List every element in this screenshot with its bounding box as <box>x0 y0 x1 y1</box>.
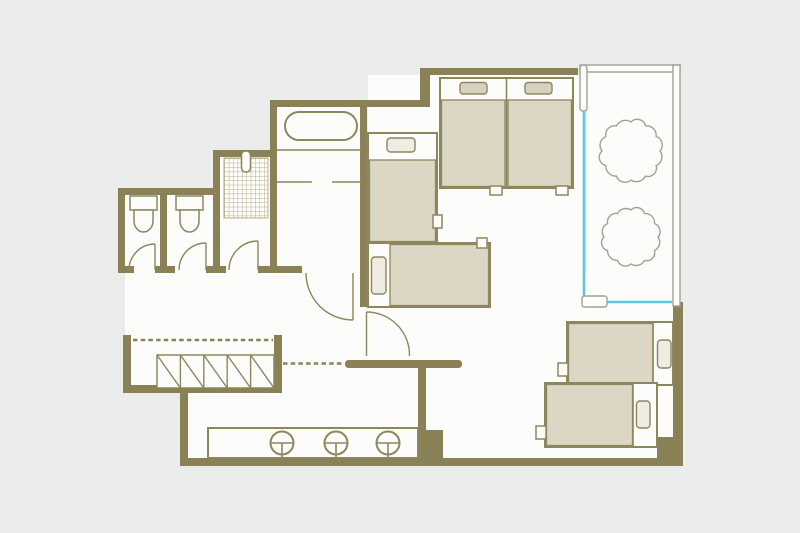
bed-pillow <box>372 257 387 294</box>
tree-lower-icon <box>602 208 660 266</box>
wall-bedroom-left <box>360 107 367 307</box>
wall-right-block <box>657 437 675 466</box>
toilet-bowl <box>180 210 199 232</box>
wall-top-bathroom <box>270 100 430 107</box>
bed-foot-right <box>556 186 568 195</box>
twin-beds <box>440 78 573 195</box>
wall-stairs-right <box>274 335 282 393</box>
bathtub <box>285 112 357 140</box>
twin-bed-left-blanket <box>442 100 506 187</box>
wall-bottom-seg2 <box>155 266 175 273</box>
floor-balcony <box>587 72 673 303</box>
wall-bathroom-left <box>270 100 277 273</box>
balcony-wall-cap <box>580 65 587 111</box>
single-bed-horizontal <box>368 238 490 307</box>
kitchen-counter <box>208 428 418 459</box>
floor-plan-diagram <box>0 0 800 533</box>
single-bed-vertical <box>368 133 442 243</box>
wall-bottom-seg4 <box>258 266 302 273</box>
bed-foot <box>536 426 546 439</box>
wall-bottom-seg1 <box>118 266 134 273</box>
wall-bottom-seg3 <box>206 266 226 273</box>
bed-pillow <box>387 138 415 152</box>
bed-blanket <box>547 385 633 446</box>
bed-blanket <box>569 324 654 384</box>
single-bed-lower <box>536 383 657 447</box>
balcony-rail-top <box>580 65 680 72</box>
floor-plan-page <box>0 0 800 533</box>
bed-foot <box>477 238 487 248</box>
toilet-tank <box>176 196 203 210</box>
door-handle <box>582 296 607 307</box>
bed-pillow <box>658 340 672 368</box>
wall-mid-vertical <box>418 368 426 460</box>
wall-step-block <box>426 430 443 460</box>
wall-outer-left-bottom <box>180 393 188 466</box>
wall-shower-left <box>213 150 220 273</box>
bed-pillow <box>637 401 651 428</box>
wall-toilets-left <box>118 188 125 273</box>
tree-upper-icon <box>599 119 662 182</box>
twin-bed-right-blanket <box>508 100 572 187</box>
bed-blanket <box>390 245 489 306</box>
bed-foot <box>558 363 568 376</box>
wall-mid-horizontal <box>345 360 462 368</box>
wall-toilet-divider <box>160 195 167 273</box>
shower-head-icon <box>242 151 251 172</box>
bed-foot <box>433 215 442 228</box>
toilet-tank <box>130 196 157 210</box>
wall-toilets-top <box>118 188 213 195</box>
wall-outer-bottom <box>180 458 683 466</box>
bed-foot-left <box>490 186 502 195</box>
pillow-left <box>460 83 487 95</box>
wall-top-bedroom <box>420 68 578 75</box>
bed-blanket <box>370 160 436 242</box>
shower-room <box>224 151 268 218</box>
wall-stairs-left <box>123 335 131 393</box>
single-bed-upper <box>558 322 673 385</box>
balcony-rail-right <box>673 65 680 306</box>
toilet-bowl <box>134 210 153 232</box>
pillow-right <box>525 83 552 95</box>
